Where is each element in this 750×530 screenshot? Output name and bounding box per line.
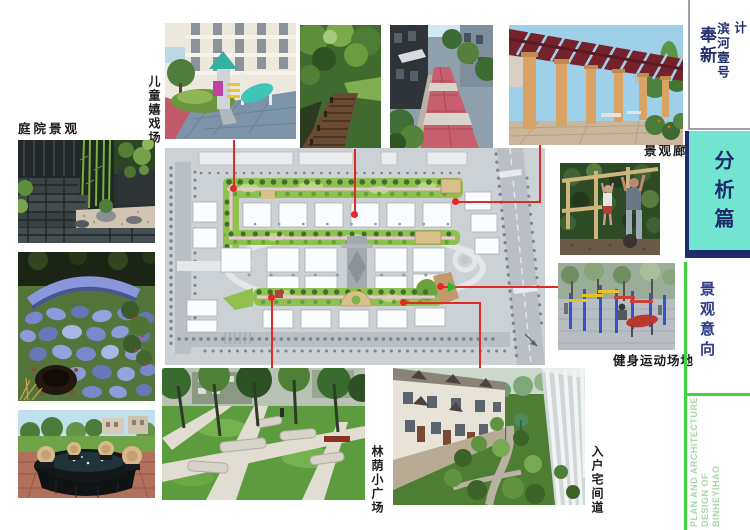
photo-entrance-lane	[393, 368, 585, 505]
photo-climbing-frame	[560, 163, 660, 255]
connector-pergola-h	[455, 201, 541, 203]
green-arrow-icon	[448, 282, 457, 292]
plan-marker-boardwalk	[351, 211, 358, 218]
photo-red-path	[390, 25, 493, 151]
connector-lane-h	[403, 302, 481, 304]
label-courtyard: 庭院景观	[18, 118, 80, 137]
photo-children-playground	[165, 23, 296, 139]
doc-type: 规划建筑方案设计	[730, 21, 750, 128]
plan-marker-lane	[400, 299, 407, 306]
plan-marker-plaza	[268, 294, 275, 301]
connector-playground	[233, 140, 235, 189]
connector-boardwalk	[354, 149, 356, 215]
connector-pergola-v	[539, 145, 541, 203]
connector-fitness	[440, 286, 558, 288]
children-playground-graphic	[165, 23, 296, 139]
mid-green-band	[225, 230, 460, 245]
label-children-playground: 儿童嬉戏场	[146, 75, 163, 145]
connector-plaza	[271, 298, 273, 368]
chapter-box: 分析篇	[685, 131, 750, 258]
title-block: 奉新 滨河壹号 规划建筑方案设计	[688, 0, 750, 130]
photo-courtyard-bluestone	[18, 252, 155, 401]
plan-marker-playground	[230, 185, 237, 192]
green-accent-line-vertical	[684, 262, 687, 530]
chapter-title: 分析篇	[708, 150, 737, 237]
photo-boardwalk	[300, 25, 381, 148]
footer-line-3: BINHEYIHAO	[711, 389, 722, 527]
label-fitness: 健身运动场地	[613, 350, 694, 369]
presentation-board: 庭院景观 儿童嬉戏场 景观廊 健身运动场地 林荫小广场 入户宅间道	[0, 0, 750, 530]
connector-lane-v	[479, 302, 481, 368]
photo-pergola	[509, 25, 683, 145]
english-footer: PLAN AND ARCHITECTURE DESIGN OF BINHEYIH…	[689, 389, 722, 527]
footer-line-1: PLAN AND ARCHITECTURE	[689, 389, 700, 527]
label-lane: 入户宅间道	[589, 445, 606, 515]
label-plaza: 林荫小广场	[369, 445, 386, 515]
photo-fountain	[18, 410, 155, 498]
photo-fitness-equipment	[558, 263, 675, 350]
photo-shaded-plaza	[162, 368, 365, 500]
plan-marker-fitness	[437, 283, 444, 290]
footer-line-2: DESIGN OF	[700, 389, 711, 527]
plan-marker-pergola	[452, 198, 459, 205]
page-title: 景观意向	[696, 281, 717, 361]
photo-courtyard-deck	[18, 140, 155, 243]
